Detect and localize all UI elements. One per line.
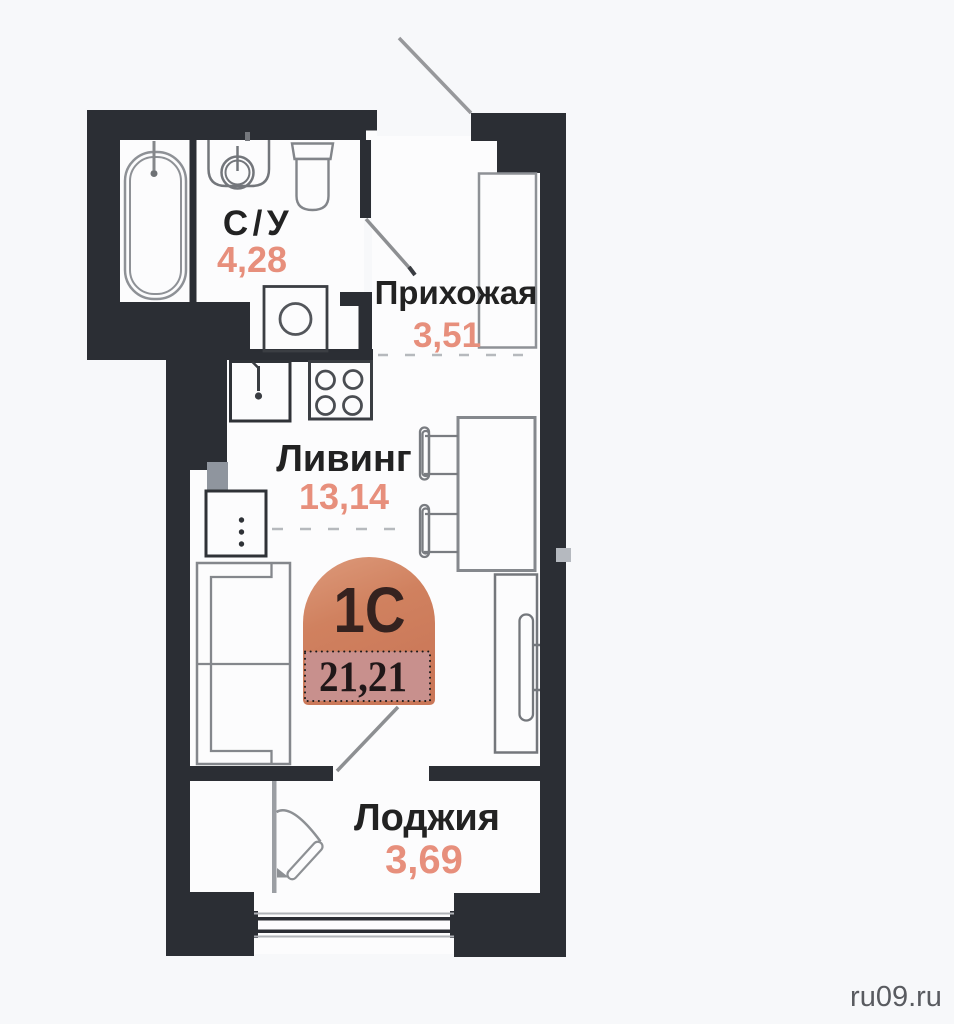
svg-text:Прихожая: Прихожая	[375, 274, 538, 311]
svg-text:1С: 1С	[334, 574, 406, 646]
svg-text:С/У: С/У	[223, 204, 293, 243]
svg-text:Лоджия: Лоджия	[354, 797, 500, 839]
svg-text:13,14: 13,14	[299, 476, 389, 517]
svg-text:4,28: 4,28	[217, 239, 287, 280]
svg-text:21,21: 21,21	[319, 654, 407, 701]
svg-text:Ливинг: Ливинг	[276, 438, 412, 480]
svg-text:3,51: 3,51	[413, 316, 481, 355]
svg-text:3,69: 3,69	[385, 838, 463, 882]
svg-text:ru09.ru: ru09.ru	[850, 981, 942, 1013]
